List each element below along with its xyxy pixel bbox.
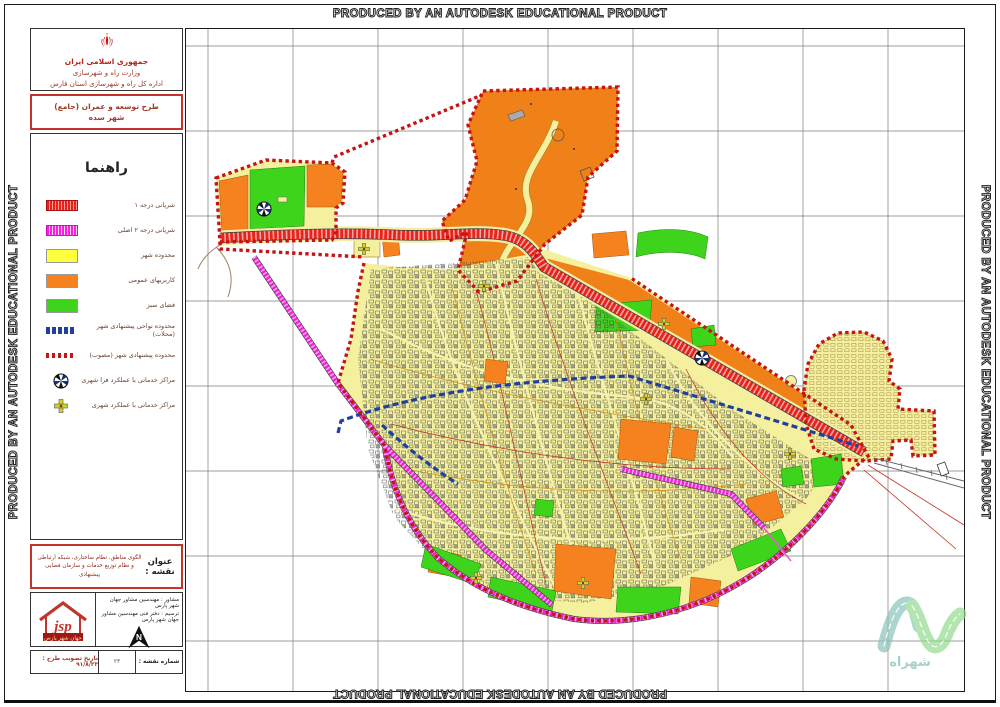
legend-box: راهنما شریانی درجه ۱ شریانی درجه ۲ اصلی … [30, 133, 183, 540]
cross-rosette-icon [46, 398, 76, 414]
map-title-heading: عنوان نقشه : [143, 557, 177, 577]
jsp-logo-icon: jsp جهان شهر پارس [32, 596, 94, 644]
map-frame [185, 28, 965, 692]
consultant-info: مشاور : مهندسین مشاور جهان شهر پارس ترسی… [95, 593, 182, 646]
legend-label: محدوده شهر [78, 252, 175, 259]
legend-label: مراکز خدماتی با عملکرد فرا شهری [76, 377, 175, 384]
legend-item-arterial1: شریانی درجه ۱ [38, 198, 175, 213]
city-name-label: شهر سده [32, 113, 181, 122]
arterial1-swatch [46, 200, 78, 211]
agency-header-box: جمهوری اسلامی ایران وزارت راه و شهرسازی … [30, 28, 183, 91]
legend-label: شریانی درجه ۲ اصلی [78, 227, 175, 234]
map-title-text: الگوی مناطق، نظام ساختاری، شبکه ارتباطی … [36, 554, 143, 579]
legend-item-regional-center: مراکز خدماتی با عملکرد فرا شهری [38, 373, 175, 388]
legend-rows: شریانی درجه ۱ شریانی درجه ۲ اصلی محدوده … [31, 198, 182, 413]
plan-title-box: طرح توسعه و عمران (جامع) شهر سده [30, 94, 183, 130]
consultant-logo: jsp جهان شهر پارس [31, 593, 95, 646]
consultant-box: مشاور : مهندسین مشاور جهان شهر پارس ترسی… [30, 592, 183, 647]
legend-item-green-space: فضای سبز [38, 298, 175, 313]
legend-label: کاربریهای عمومی [78, 277, 175, 284]
watermark-right: PRODUCED BY AN AUTODESK EDUCATIONAL PROD… [979, 185, 991, 519]
legend-item-city-limit: محدوده شهر [38, 248, 175, 263]
country-title: جمهوری اسلامی ایران [31, 57, 182, 66]
draftsman-line: ترسیم : دفتر فنی مهندسین مشاور جهان شهر … [99, 611, 179, 623]
legend-label: شریانی درجه ۱ [78, 202, 175, 209]
title-block-panel: جمهوری اسلامی ایران وزارت راه و شهرسازی … [30, 28, 185, 678]
road-n-logo-icon: شهراه [872, 580, 972, 675]
ministry-title: وزارت راه و شهرسازی [31, 69, 182, 77]
railway-exit [864, 458, 964, 549]
map-title-box: عنوان نقشه : الگوی مناطق، نظام ساختاری، … [30, 544, 183, 589]
plan-sheet: PRODUCED BY AN AUTODESK EDUCATIONAL PROD… [0, 0, 1000, 707]
svg-text:N: N [136, 633, 142, 642]
legend-item-arterial2: شریانی درجه ۲ اصلی [38, 223, 175, 238]
approval-date: تاریخ تصویب طرح : ۹۱/۸/۲۳ [31, 651, 98, 673]
approved-boundary-swatch [46, 353, 76, 358]
city-map-svg [186, 29, 964, 691]
legend-item-public-uses: کاربریهای عمومی [38, 273, 175, 288]
legend-item-urban-center: مراکز خدماتی با عملکرد شهری [38, 398, 175, 413]
sheet-footer-row: شماره نقشه : ۲۳ تاریخ تصویب طرح : ۹۱/۸/۲… [30, 650, 183, 674]
legend-title: راهنما [31, 160, 182, 176]
public-uses-swatch [46, 274, 78, 288]
watermark-left: PRODUCED BY AN AUTODESK EDUCATIONAL PROD… [8, 185, 20, 519]
district-boundary-swatch [46, 327, 76, 334]
pinwheel-icon [46, 373, 76, 389]
city-limit-swatch [46, 249, 78, 263]
svg-text:شهراه: شهراه [889, 655, 931, 670]
legend-item-approved-boundary: محدوده پیشنهادی شهر (مصوب) [38, 348, 175, 363]
minor-roads [198, 245, 231, 297]
legend-label: فضای سبز [78, 302, 175, 309]
green-space-swatch [46, 299, 78, 313]
legend-label: محدوده نواحی پیشنهادی شهر (محلات) [76, 323, 175, 337]
consultant-line: مشاور : مهندسین مشاور جهان شهر پارس [99, 597, 179, 609]
watermark-bottom: PRODUCED BY AN AUTODESK EDUCATIONAL PROD… [333, 687, 667, 699]
sheet-number-value: ۲۳ [98, 651, 135, 673]
department-title: اداره کل راه و شهرسازی استان فارس [31, 80, 182, 88]
legend-label: مراکز خدماتی با عملکرد شهری [76, 402, 175, 409]
corner-logo: شهراه [872, 580, 972, 675]
legend-label: محدوده پیشنهادی شهر (مصوب) [76, 352, 175, 359]
svg-text:jsp: jsp [52, 619, 72, 635]
arterial2-swatch [46, 225, 78, 236]
watermark-top: PRODUCED BY AN AUTODESK EDUCATIONAL PROD… [333, 8, 667, 20]
svg-text:جهان شهر پارس: جهان شهر پارس [44, 635, 82, 641]
iran-emblem-icon [96, 32, 118, 52]
legend-item-district-boundary: محدوده نواحی پیشنهادی شهر (محلات) [38, 323, 175, 338]
sheet-bottom-rule [4, 700, 996, 703]
plan-type-label: طرح توسعه و عمران (جامع) [32, 102, 181, 111]
sheet-number-label: شماره نقشه : [135, 651, 182, 673]
